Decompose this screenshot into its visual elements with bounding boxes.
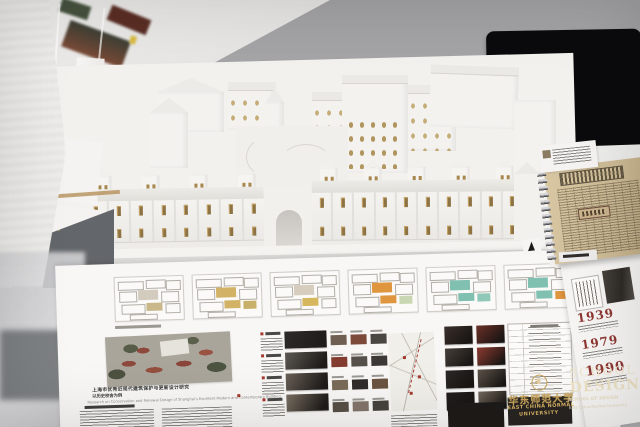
plan-block (457, 270, 477, 280)
plan-panel (269, 270, 340, 317)
photo-grid-cell (352, 398, 368, 412)
small-photo (350, 334, 366, 344)
middle-text-column (260, 332, 285, 421)
document-excerpt-box (571, 275, 604, 312)
photo-card (59, 0, 92, 20)
facade-bay (174, 200, 197, 242)
model-perimeter-building (429, 64, 519, 129)
facade-bay (312, 193, 332, 241)
plan-block (302, 298, 318, 306)
plan-block (275, 286, 293, 298)
university-name-en2: UNIVERSITY (519, 410, 559, 418)
plan-block (431, 281, 449, 293)
facade-bay (219, 199, 242, 241)
plan-caption (115, 325, 161, 329)
gateway-arch (276, 210, 302, 246)
photo-grid-cell (332, 398, 348, 412)
photo-grid (330, 329, 389, 412)
plan-block (372, 282, 392, 293)
small-photo (371, 355, 387, 365)
plan-block (294, 285, 314, 296)
plan-block (208, 311, 236, 318)
plan-block (138, 290, 158, 301)
body-text-column (80, 409, 155, 427)
facade-right-bays (312, 191, 522, 241)
facade-bay (373, 192, 395, 240)
spiral-book (539, 157, 640, 265)
plan-block (478, 270, 493, 280)
archive-photo (445, 348, 474, 367)
plan-block (535, 267, 555, 277)
plan-block (353, 284, 371, 296)
facade-bay (241, 198, 264, 240)
small-photo (352, 379, 368, 389)
archive-photo (476, 325, 505, 344)
plan-block (161, 291, 179, 303)
small-photo (370, 333, 386, 343)
small-photo (285, 351, 328, 369)
photo-grid-cell (372, 397, 388, 411)
model-rear-building (150, 112, 188, 168)
facade-bay (352, 192, 374, 240)
facade-bay (129, 200, 152, 242)
school-sub-line2: East China Normal University (569, 402, 628, 410)
plan-block (395, 284, 413, 296)
plan-block (302, 274, 322, 284)
plan-block (450, 280, 470, 291)
dark-photo (448, 402, 505, 427)
section-heading-bar (85, 404, 135, 409)
aerial-photo (105, 331, 232, 387)
small-photo (286, 372, 329, 390)
north-arrow-icon (525, 241, 537, 253)
watermark: 华东师范大学 EAST CHINA NORMAL UNIVERSITY SCHO… (496, 354, 640, 427)
plan-block (321, 298, 336, 308)
plan-block (322, 275, 337, 285)
plan-block (146, 279, 166, 289)
small-photo (284, 330, 327, 348)
small-photo (331, 357, 347, 367)
gray-model-in-case (0, 330, 62, 400)
plan-block (119, 291, 137, 303)
plan-block (146, 302, 162, 310)
small-photo (372, 378, 388, 388)
text-section (261, 354, 284, 377)
facade-bay (479, 191, 501, 239)
facade-bay (151, 200, 174, 242)
red-superscript (237, 394, 240, 397)
facade-bay (331, 193, 353, 241)
plan-block (509, 279, 527, 291)
plan-block (243, 301, 256, 309)
plan-block (244, 277, 259, 287)
photo-grid-cell (372, 374, 388, 388)
plan-block (520, 301, 548, 308)
photo-grid-cell (351, 353, 367, 367)
facade-bay (458, 191, 480, 239)
plan-panel (191, 272, 262, 319)
plan-block (224, 277, 244, 287)
plan-block (224, 300, 240, 308)
facade-bay (416, 192, 438, 240)
yellow-tag (129, 35, 137, 45)
building-photo (602, 267, 635, 304)
small-photo (353, 401, 369, 411)
plan-block (216, 287, 236, 298)
timeline-entry: 1939 (576, 306, 619, 332)
plan-panel (425, 265, 496, 312)
facade-right-wing (312, 179, 523, 247)
plan-block (400, 273, 415, 283)
model-gateway (264, 186, 314, 246)
plan-block (458, 293, 474, 301)
plan-block (317, 286, 335, 298)
text-section (262, 376, 285, 399)
plan-block (166, 280, 181, 290)
plan-block (165, 303, 180, 313)
facade-bay (437, 192, 459, 240)
photo-grid-cell (352, 375, 368, 389)
photo-grid-cell (370, 329, 386, 343)
plan-block (197, 289, 215, 301)
plan-panel (347, 267, 418, 314)
plan-block (473, 281, 491, 293)
school-wordmark-line2: DESIGN (569, 376, 640, 396)
plan-block (380, 295, 396, 303)
photo-card (107, 5, 152, 36)
exhibition-photo: 上海市优秀近现代建筑保护与更新设计研究 以历史校舍为例 Research on … (0, 0, 640, 427)
body-text-column (162, 406, 233, 427)
photo-grid-cell (350, 330, 366, 344)
archive-photo (446, 370, 475, 389)
plan-panel (114, 275, 185, 322)
university-emblem-icon (531, 374, 548, 391)
small-photo (373, 400, 389, 410)
north-arrow-card (522, 238, 542, 256)
small-photo (330, 334, 346, 344)
plan-block (286, 309, 314, 316)
plan-block (442, 304, 470, 311)
photo-grid-cell (331, 353, 347, 367)
plan-panel-row (114, 263, 575, 322)
plan-block (364, 306, 392, 313)
plan-block (477, 293, 490, 301)
model-tall-building (342, 75, 408, 173)
plan-block (536, 290, 552, 298)
facade-bay (395, 192, 417, 240)
facade-bay (196, 199, 219, 241)
text-section (260, 332, 283, 355)
plan-block (239, 289, 257, 301)
newspaper-text (557, 180, 640, 258)
plan-block (399, 296, 412, 304)
small-photo (286, 393, 329, 411)
site-map (388, 332, 438, 412)
plan-block (528, 277, 548, 288)
map-note (391, 414, 437, 427)
photo-grid-cell (332, 376, 348, 390)
small-photo (332, 379, 348, 389)
plan-block (380, 272, 400, 282)
small-photo (351, 356, 367, 366)
archive-photo (444, 326, 473, 345)
middle-photo-column (284, 330, 329, 415)
plan-block (130, 314, 158, 321)
model-corner-pavilion (514, 174, 541, 240)
text-section (262, 398, 285, 421)
small-photo (333, 402, 349, 412)
photo-grid-cell (371, 352, 387, 366)
photo-grid-cell (330, 331, 346, 345)
